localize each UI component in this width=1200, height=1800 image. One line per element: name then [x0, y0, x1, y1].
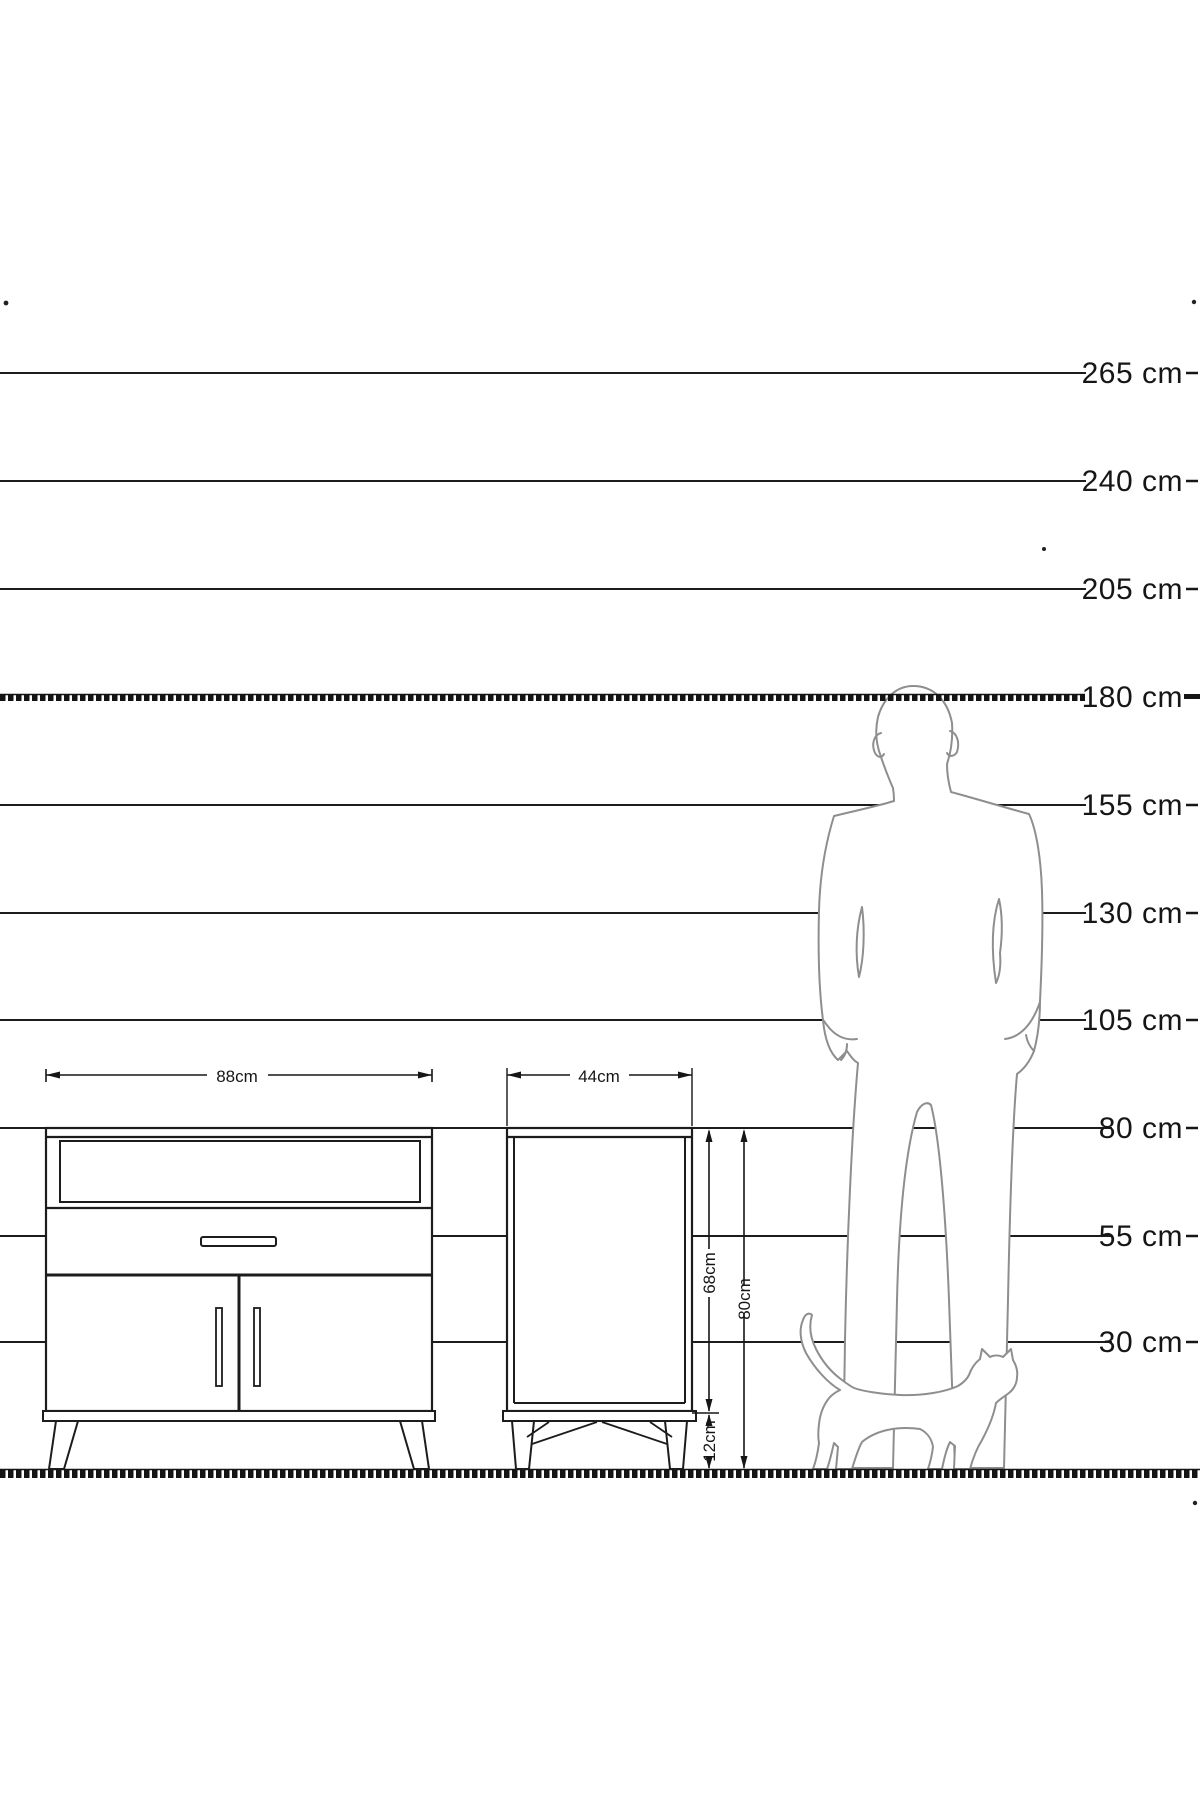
cabinet-body	[507, 1128, 692, 1411]
scale-label-55: 55 cm	[1099, 1220, 1183, 1253]
cabinet-right-leg	[665, 1421, 687, 1469]
cabinet-total-height-label: 80cm	[735, 1278, 754, 1320]
width-dimension-44: 44cm	[507, 1067, 692, 1126]
left-door-handle	[216, 1308, 222, 1386]
speck	[1192, 300, 1196, 304]
height-dimension-80: 80cm	[735, 1129, 754, 1469]
sideboard-open-shelf	[60, 1141, 420, 1202]
scale-label-130: 130 cm	[1082, 897, 1183, 930]
sideboard	[43, 1128, 435, 1469]
scale-label-155: 155 cm	[1082, 789, 1183, 822]
sideboard-right-leg	[400, 1421, 429, 1469]
cabinet-left-leg-strut	[532, 1422, 597, 1444]
scale-label-240: 240 cm	[1082, 465, 1183, 498]
scale-label-30: 30 cm	[1099, 1326, 1183, 1359]
diagram-svg: 88cm 44cm 68cm 12cm	[0, 0, 1200, 1800]
cabinet-right-leg-strut	[602, 1422, 667, 1444]
right-door-handle	[254, 1308, 260, 1386]
width-dimension-88: 88cm	[46, 1067, 432, 1086]
cabinet-body-height-label: 68cm	[700, 1252, 719, 1294]
sideboard-base	[43, 1411, 435, 1421]
scale-label-180: 180 cm	[1082, 681, 1183, 714]
speck	[1193, 1501, 1197, 1505]
drawer-handle	[201, 1237, 276, 1246]
speck	[4, 301, 9, 306]
scale-line-180-hatched	[0, 695, 1085, 702]
scale-label-105: 105 cm	[1082, 1004, 1183, 1037]
cabinet-base	[503, 1411, 696, 1421]
speck	[1042, 547, 1046, 551]
scale-tick-180	[1184, 694, 1200, 699]
furniture-dimension-diagram: 88cm 44cm 68cm 12cm	[0, 0, 1200, 1800]
scale-label-205: 205 cm	[1082, 573, 1183, 606]
scale-label-80: 80 cm	[1099, 1112, 1183, 1145]
height-scale-labels: 265 cm 240 cm 205 cm 180 cm 155 cm 130 c…	[1082, 357, 1200, 1359]
floor-line	[0, 1470, 1200, 1479]
small-cabinet	[503, 1128, 696, 1469]
cabinet-width-label: 44cm	[578, 1067, 620, 1086]
cabinet-left-leg	[512, 1421, 534, 1469]
sideboard-left-leg	[49, 1421, 78, 1469]
scale-label-265: 265 cm	[1082, 357, 1183, 390]
sideboard-width-label: 88cm	[216, 1067, 258, 1086]
height-dimension-68: 68cm	[700, 1129, 719, 1412]
cabinet-leg-height-label: 12cm	[700, 1420, 719, 1462]
